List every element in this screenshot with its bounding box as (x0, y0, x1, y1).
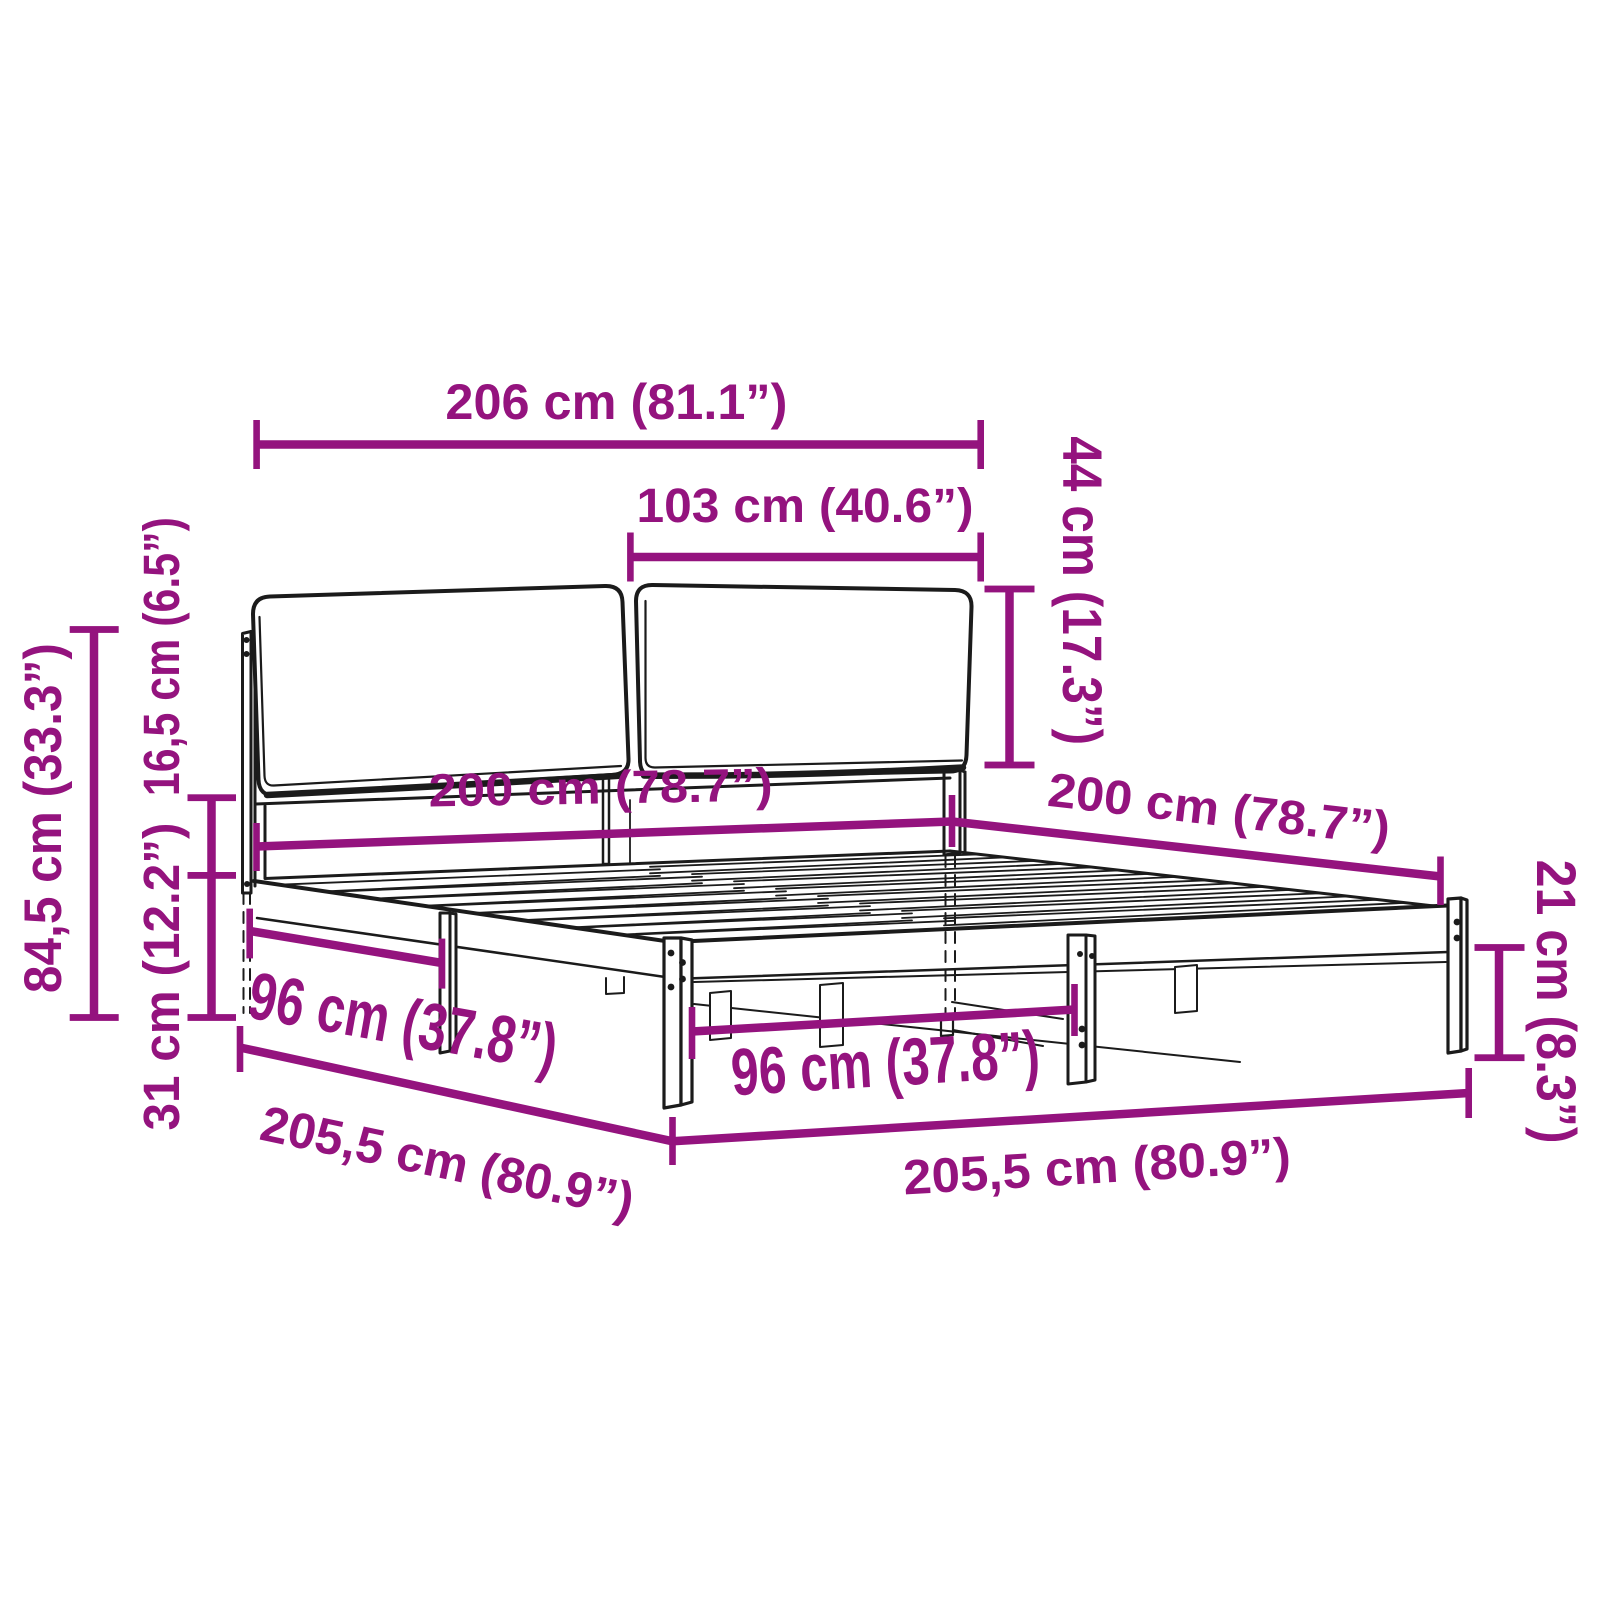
svg-text:200 cm (78.7”): 200 cm (78.7”) (428, 759, 773, 817)
svg-text:84,5 cm (33.3”): 84,5 cm (33.3”) (14, 643, 73, 993)
svg-text:103 cm (40.6”): 103 cm (40.6”) (637, 480, 974, 533)
svg-text:44 cm (17.3”): 44 cm (17.3”) (1051, 436, 1113, 745)
svg-text:21 cm (8.3”): 21 cm (8.3”) (1525, 860, 1587, 1144)
svg-text:206 cm (81.1”): 206 cm (81.1”) (445, 373, 787, 430)
svg-text:31 cm (12.2”): 31 cm (12.2”) (133, 823, 190, 1131)
svg-text:16,5 cm (6.5”): 16,5 cm (6.5”) (133, 517, 190, 796)
